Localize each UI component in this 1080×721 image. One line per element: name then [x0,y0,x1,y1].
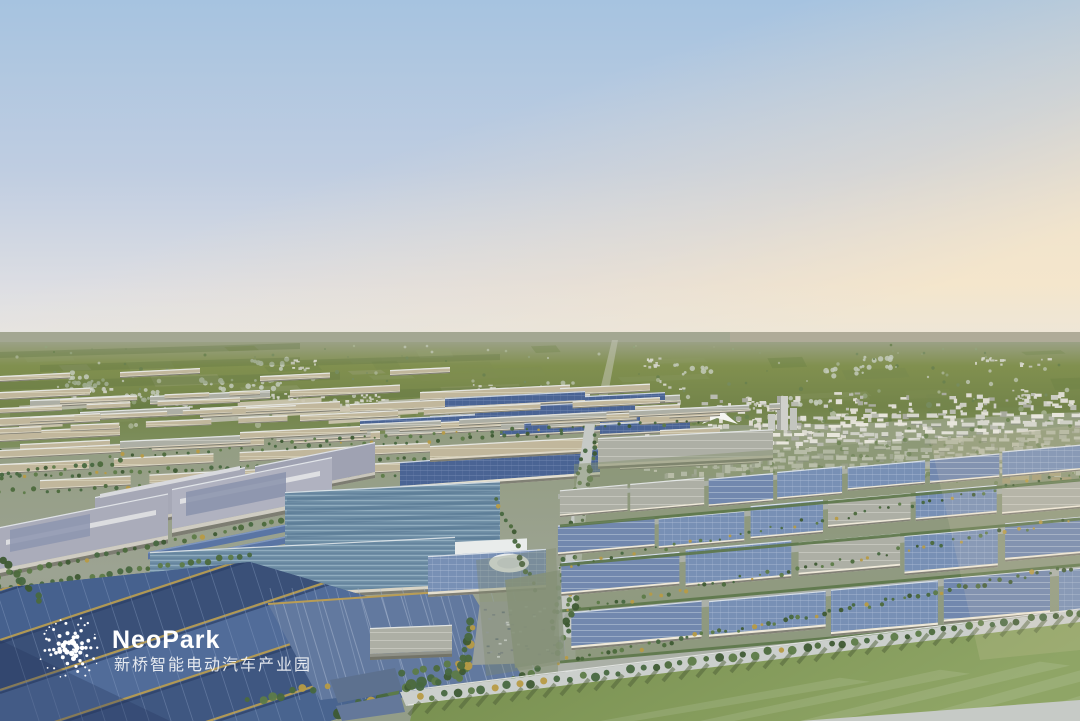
svg-text:新桥智能电动汽车产业园: 新桥智能电动汽车产业园 [114,656,312,674]
svg-text:NeoPark: NeoPark [112,626,220,654]
